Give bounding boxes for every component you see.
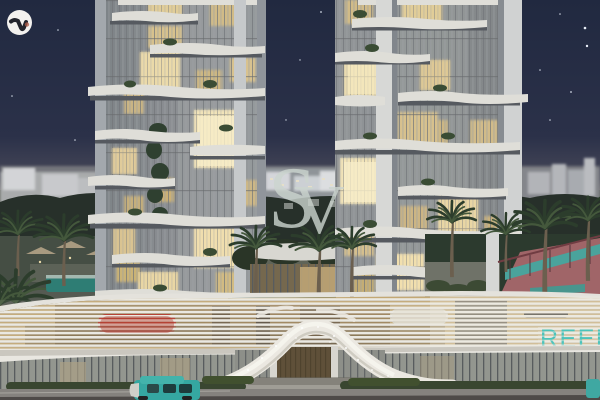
- svg-text:V: V: [294, 172, 345, 249]
